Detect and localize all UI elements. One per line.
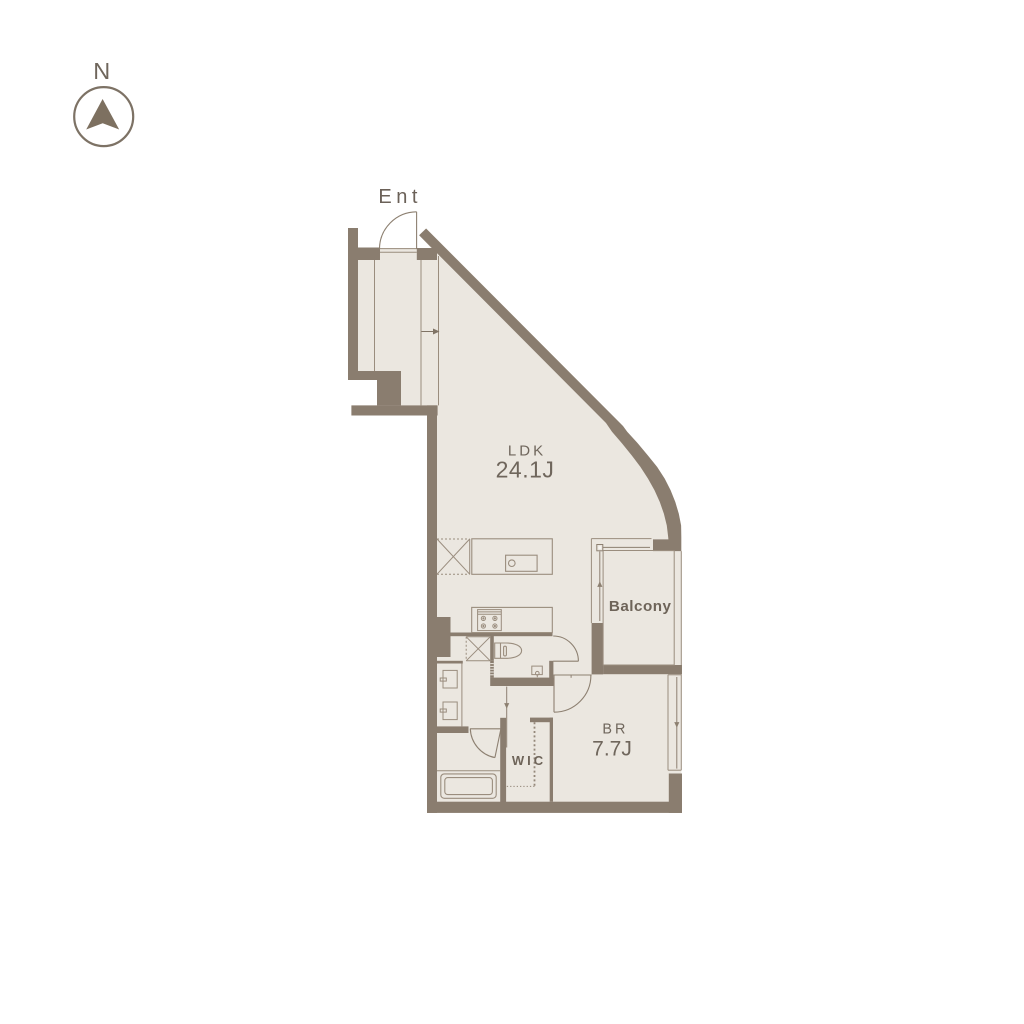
svg-text:Balcony: Balcony <box>609 598 672 615</box>
svg-text:Ent: Ent <box>378 186 422 208</box>
svg-text:24.1J: 24.1J <box>496 457 555 483</box>
svg-text:BR: BR <box>602 722 628 738</box>
svg-text:7.7J: 7.7J <box>592 738 632 761</box>
svg-text:N: N <box>93 58 110 84</box>
svg-text:WIC: WIC <box>512 753 546 768</box>
